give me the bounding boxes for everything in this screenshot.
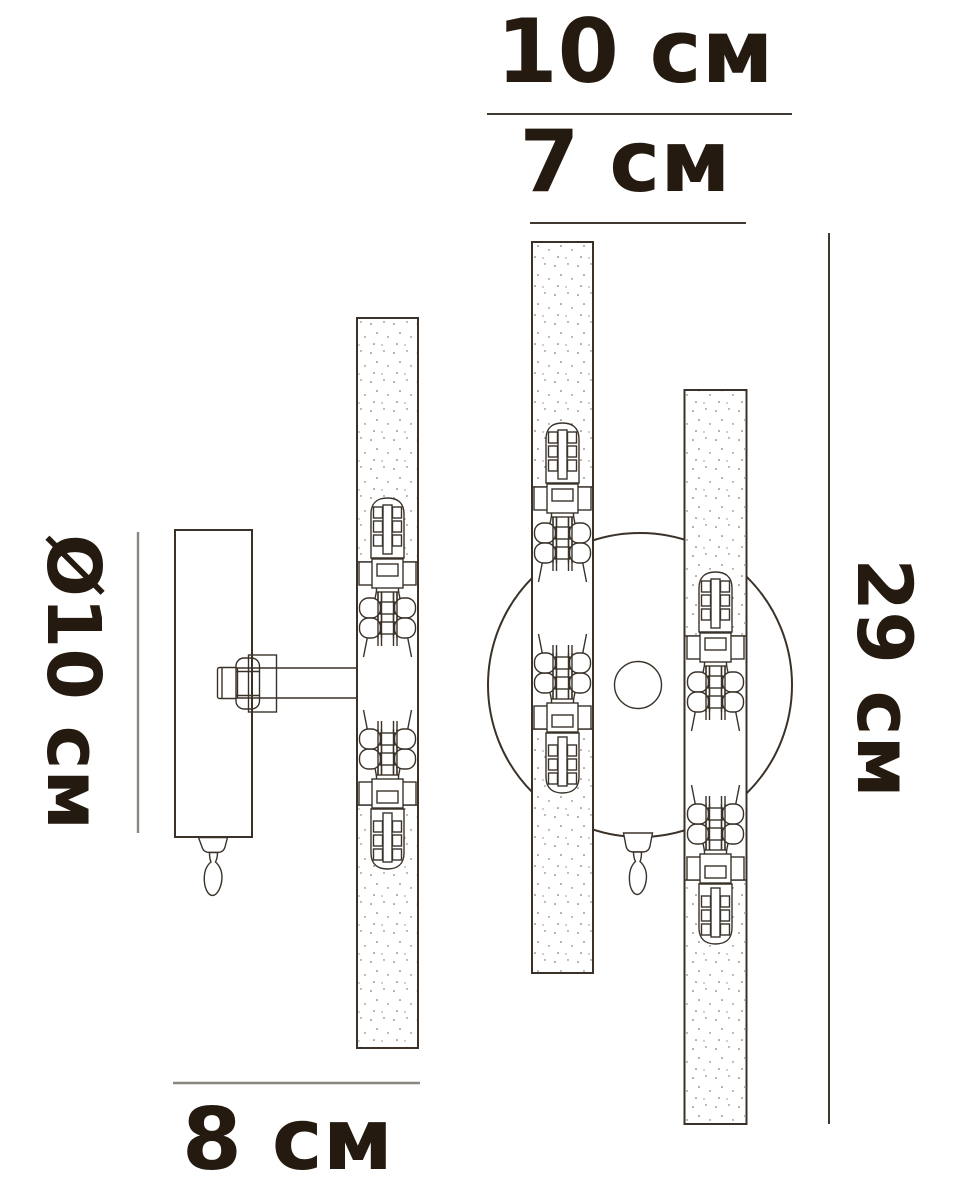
- glass-tube-left: [532, 242, 593, 973]
- center-hub-circle: [615, 662, 662, 709]
- dimension-label-tube-span: 7 см: [450, 112, 800, 212]
- front-view: [488, 242, 792, 1124]
- dimension-label-backplate-diameter: Ø10 см: [23, 517, 123, 847]
- dimension-label-overall-height: 29 см: [834, 528, 934, 828]
- dimension-label-side-depth: 8 см: [115, 1090, 460, 1190]
- side-view: [175, 318, 418, 1048]
- glass-tube-side: [357, 318, 418, 1048]
- toggle-switch-front: [624, 833, 653, 895]
- wall-plate-side: [175, 530, 252, 837]
- dimension-drawing-page: 10 см 7 см Ø10 см 29 см 8 см: [0, 0, 967, 1200]
- glass-tube-right: [685, 390, 747, 1124]
- dimension-label-backplate-width: 10 см: [460, 2, 810, 102]
- mount-arm: [237, 668, 357, 698]
- toggle-switch-side: [199, 838, 228, 896]
